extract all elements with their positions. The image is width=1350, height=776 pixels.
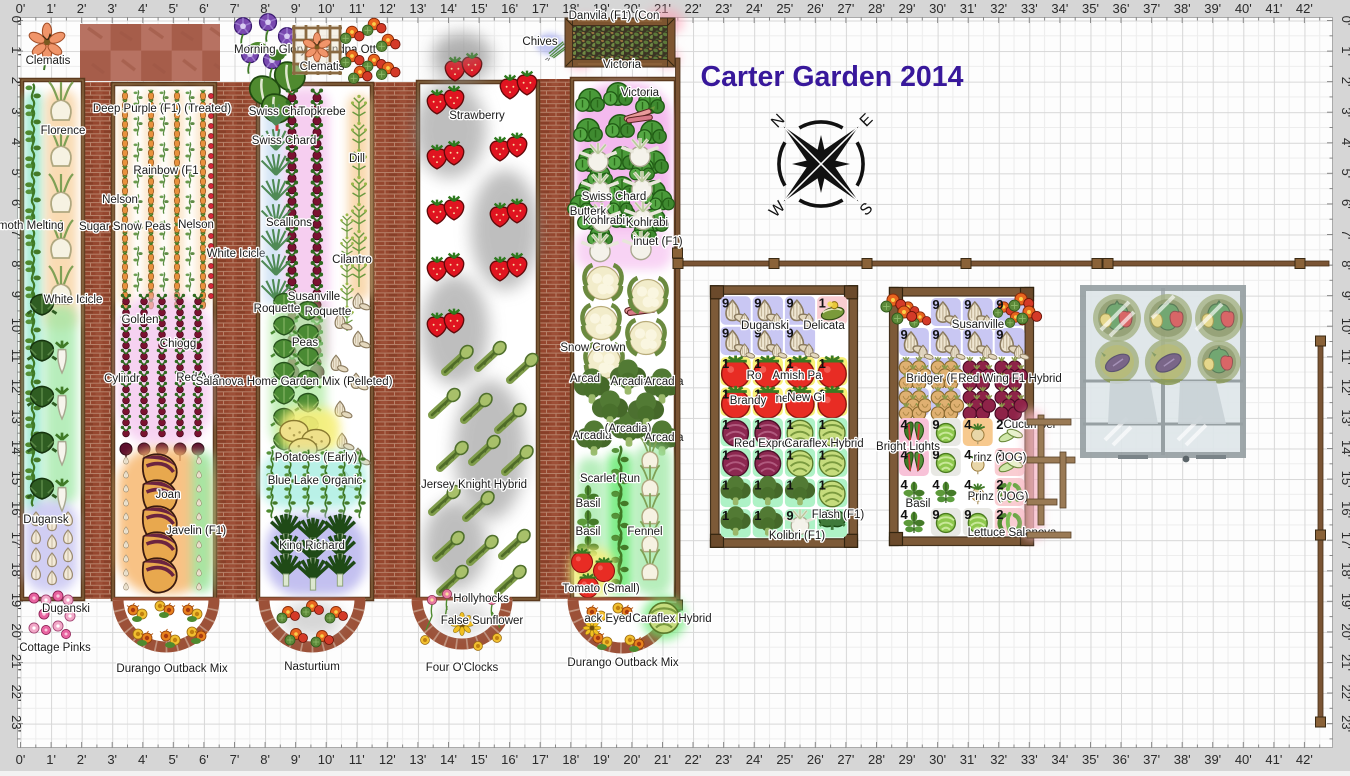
svg-text:9: 9 bbox=[901, 327, 908, 342]
svg-text:15': 15' bbox=[1339, 471, 1350, 488]
svg-text:Scallions: Scallions bbox=[266, 217, 312, 229]
svg-text:42': 42' bbox=[1296, 752, 1313, 767]
svg-text:5': 5' bbox=[168, 752, 178, 767]
svg-text:39': 39' bbox=[1204, 1, 1221, 16]
svg-text:Cilantro: Cilantro bbox=[332, 254, 372, 266]
svg-text:9: 9 bbox=[722, 295, 729, 310]
svg-text:Swiss Chard: Swiss Chard bbox=[252, 135, 317, 147]
svg-text:White Icicle: White Icicle bbox=[44, 294, 103, 306]
svg-text:10': 10' bbox=[318, 752, 335, 767]
svg-text:17': 17' bbox=[1339, 532, 1350, 549]
svg-text:16': 16' bbox=[501, 752, 518, 767]
svg-text:9: 9 bbox=[964, 297, 971, 312]
svg-text:9: 9 bbox=[932, 507, 939, 522]
svg-text:Cottage Pinks: Cottage Pinks bbox=[19, 642, 91, 654]
svg-text:9: 9 bbox=[786, 295, 793, 310]
svg-text:40': 40' bbox=[1235, 752, 1252, 767]
svg-text:13': 13' bbox=[409, 752, 426, 767]
svg-text:Blue Lake Organic: Blue Lake Organic bbox=[268, 475, 363, 487]
svg-text:1: 1 bbox=[722, 447, 729, 462]
svg-text:23': 23' bbox=[715, 1, 732, 16]
svg-text:19': 19' bbox=[593, 752, 610, 767]
svg-text:Duganski: Duganski bbox=[741, 320, 789, 332]
svg-text:Topkrebe: Topkrebe bbox=[298, 106, 345, 118]
svg-text:1: 1 bbox=[722, 417, 729, 432]
svg-text:Prinz (JOG): Prinz (JOG) bbox=[968, 491, 1029, 503]
svg-text:Brandy: Brandy bbox=[730, 395, 767, 407]
svg-text:10': 10' bbox=[1339, 318, 1350, 335]
svg-text:22': 22' bbox=[9, 685, 24, 702]
svg-text:4: 4 bbox=[964, 447, 972, 462]
svg-text:Deep Purple (F1) (Treated): Deep Purple (F1) (Treated) bbox=[93, 103, 231, 115]
svg-text:2': 2' bbox=[1339, 77, 1350, 87]
svg-text:1': 1' bbox=[1339, 46, 1350, 56]
svg-text:Kolibri (F1): Kolibri (F1) bbox=[769, 530, 825, 542]
svg-text:Tomato (Small): Tomato (Small) bbox=[562, 583, 639, 595]
svg-text:12': 12' bbox=[379, 1, 396, 16]
svg-text:Caraflex Hybrid: Caraflex Hybrid bbox=[632, 613, 711, 625]
svg-text:Basil: Basil bbox=[576, 526, 601, 538]
svg-text:35': 35' bbox=[1082, 1, 1099, 16]
svg-text:Basil: Basil bbox=[576, 498, 601, 510]
svg-text:1: 1 bbox=[819, 356, 826, 371]
svg-text:26': 26' bbox=[807, 1, 824, 16]
svg-text:Strawberry: Strawberry bbox=[449, 110, 505, 122]
svg-text:22': 22' bbox=[685, 1, 702, 16]
svg-text:9: 9 bbox=[964, 507, 971, 522]
svg-text:Clematis: Clematis bbox=[26, 55, 71, 67]
svg-text:Peas: Peas bbox=[292, 337, 318, 349]
svg-text:38': 38' bbox=[1174, 1, 1191, 16]
svg-text:Caraflex Hybrid: Caraflex Hybrid bbox=[784, 438, 863, 450]
svg-text:12': 12' bbox=[1339, 379, 1350, 396]
svg-text:7': 7' bbox=[230, 752, 240, 767]
svg-text:Flash (F1): Flash (F1) bbox=[812, 509, 865, 521]
svg-text:41': 41' bbox=[1265, 1, 1282, 16]
svg-text:1': 1' bbox=[9, 46, 24, 56]
svg-text:4': 4' bbox=[138, 752, 148, 767]
svg-text:1: 1 bbox=[722, 478, 729, 493]
svg-text:9': 9' bbox=[291, 752, 301, 767]
svg-text:2': 2' bbox=[77, 752, 87, 767]
svg-text:32': 32' bbox=[990, 752, 1007, 767]
svg-text:39': 39' bbox=[1204, 752, 1221, 767]
svg-text:33': 33' bbox=[1021, 752, 1038, 767]
svg-text:Sugar Snow Peas: Sugar Snow Peas bbox=[79, 221, 171, 233]
svg-text:28': 28' bbox=[868, 1, 885, 16]
svg-text:inuet (F1): inuet (F1) bbox=[633, 236, 682, 248]
svg-text:Durango Outback Mix: Durango Outback Mix bbox=[116, 663, 227, 675]
svg-text:Bridger (F1: Bridger (F1 bbox=[906, 373, 964, 385]
svg-text:32': 32' bbox=[990, 1, 1007, 16]
svg-text:15': 15' bbox=[471, 1, 488, 16]
svg-text:9: 9 bbox=[754, 295, 761, 310]
svg-text:8': 8' bbox=[260, 752, 270, 767]
svg-text:Florence: Florence bbox=[41, 125, 86, 137]
svg-text:10': 10' bbox=[318, 1, 335, 16]
svg-text:6': 6' bbox=[1339, 199, 1350, 209]
svg-text:36': 36' bbox=[1113, 1, 1130, 16]
svg-text:Fennel: Fennel bbox=[627, 526, 662, 538]
svg-text:Kohlrabi: Kohlrabi bbox=[626, 217, 668, 229]
svg-text:4: 4 bbox=[932, 477, 940, 492]
svg-text:26': 26' bbox=[807, 752, 824, 767]
svg-text:14': 14' bbox=[440, 752, 457, 767]
svg-text:0': 0' bbox=[16, 752, 26, 767]
svg-text:Potatoes (Early): Potatoes (Early) bbox=[275, 452, 358, 464]
svg-text:Carter Garden 2014: Carter Garden 2014 bbox=[701, 61, 964, 93]
svg-text:20': 20' bbox=[9, 623, 24, 640]
svg-text:19': 19' bbox=[1339, 593, 1350, 610]
svg-text:1: 1 bbox=[819, 295, 826, 310]
svg-text:23': 23' bbox=[9, 715, 24, 732]
svg-text:9': 9' bbox=[291, 1, 301, 16]
svg-text:9': 9' bbox=[1339, 291, 1350, 301]
svg-text:21': 21' bbox=[654, 752, 671, 767]
svg-text:1': 1' bbox=[46, 752, 56, 767]
svg-text:21': 21' bbox=[9, 654, 24, 671]
svg-text:23': 23' bbox=[715, 752, 732, 767]
svg-text:1: 1 bbox=[754, 478, 761, 493]
svg-text:18': 18' bbox=[562, 752, 579, 767]
svg-text:5': 5' bbox=[168, 1, 178, 16]
svg-text:4': 4' bbox=[138, 1, 148, 16]
svg-text:Danvila (F1) (Con: Danvila (F1) (Con bbox=[569, 10, 660, 22]
svg-text:16': 16' bbox=[501, 1, 518, 16]
svg-text:0': 0' bbox=[9, 16, 24, 26]
svg-text:37': 37' bbox=[1143, 1, 1160, 16]
svg-text:1: 1 bbox=[819, 417, 826, 432]
svg-text:2: 2 bbox=[996, 507, 1003, 522]
svg-text:Cylindr: Cylindr bbox=[104, 373, 140, 385]
svg-text:11': 11' bbox=[349, 752, 365, 767]
svg-text:13': 13' bbox=[1339, 409, 1350, 426]
svg-text:13': 13' bbox=[409, 1, 426, 16]
svg-text:12': 12' bbox=[379, 752, 396, 767]
svg-text:Javelin (F1): Javelin (F1) bbox=[166, 525, 226, 537]
svg-text:7': 7' bbox=[1339, 230, 1350, 240]
svg-text:Ro: Ro bbox=[747, 370, 762, 382]
svg-text:Basil: Basil bbox=[906, 498, 931, 510]
svg-text:Roquette: Roquette bbox=[254, 303, 301, 315]
svg-text:8': 8' bbox=[1339, 260, 1350, 270]
svg-text:38': 38' bbox=[1174, 752, 1191, 767]
svg-text:Joan: Joan bbox=[156, 489, 181, 501]
svg-text:2': 2' bbox=[77, 1, 87, 16]
svg-text:Victoria: Victoria bbox=[603, 59, 642, 71]
svg-text:Duganski: Duganski bbox=[42, 603, 90, 615]
svg-text:41': 41' bbox=[1265, 752, 1282, 767]
svg-text:1': 1' bbox=[46, 1, 56, 16]
svg-text:20': 20' bbox=[623, 752, 640, 767]
svg-text:Four O'Clocks: Four O'Clocks bbox=[426, 662, 499, 674]
svg-text:25': 25' bbox=[776, 752, 793, 767]
svg-text:Mammoth Melting: Mammoth Melting bbox=[0, 220, 64, 232]
svg-text:Dugansk: Dugansk bbox=[23, 514, 69, 526]
svg-text:Dill: Dill bbox=[349, 153, 365, 165]
svg-text:Delicata: Delicata bbox=[803, 320, 845, 332]
svg-text:Amish Pa: Amish Pa bbox=[772, 370, 822, 382]
svg-text:34': 34' bbox=[1051, 1, 1068, 16]
svg-text:15': 15' bbox=[471, 752, 488, 767]
svg-text:3': 3' bbox=[107, 1, 117, 16]
svg-text:Chives: Chives bbox=[522, 36, 557, 48]
svg-text:Hollyhocks: Hollyhocks bbox=[453, 593, 509, 605]
svg-text:False Sunflower: False Sunflower bbox=[441, 615, 524, 627]
svg-text:9: 9 bbox=[932, 417, 939, 432]
svg-text:Kohlrabi: Kohlrabi bbox=[583, 215, 625, 227]
svg-text:Nelson: Nelson bbox=[178, 219, 214, 231]
svg-text:1: 1 bbox=[786, 356, 793, 371]
svg-text:3': 3' bbox=[1339, 107, 1350, 117]
svg-text:Clematis: Clematis bbox=[300, 61, 345, 73]
svg-text:2: 2 bbox=[996, 477, 1003, 492]
svg-text:9: 9 bbox=[932, 297, 939, 312]
svg-text:9: 9 bbox=[996, 297, 1003, 312]
svg-text:Swiss Chard: Swiss Chard bbox=[582, 191, 647, 203]
svg-text:4: 4 bbox=[901, 477, 909, 492]
svg-text:5': 5' bbox=[1339, 168, 1350, 178]
svg-text:Bright Lights: Bright Lights bbox=[876, 441, 940, 453]
svg-text:1: 1 bbox=[786, 478, 793, 493]
svg-text:30': 30' bbox=[929, 752, 946, 767]
svg-text:16': 16' bbox=[1339, 501, 1350, 518]
svg-text:1: 1 bbox=[786, 417, 793, 432]
svg-text:14': 14' bbox=[1339, 440, 1350, 457]
svg-text:King Richard: King Richard bbox=[279, 540, 345, 552]
svg-text:1: 1 bbox=[819, 478, 826, 493]
svg-text:6': 6' bbox=[199, 752, 209, 767]
svg-text:31': 31' bbox=[960, 752, 977, 767]
svg-text:4: 4 bbox=[901, 417, 909, 432]
svg-text:31': 31' bbox=[960, 1, 977, 16]
svg-text:Red Wing F1 Hybrid: Red Wing F1 Hybrid bbox=[958, 373, 1062, 385]
svg-text:29': 29' bbox=[899, 1, 916, 16]
svg-text:17': 17' bbox=[532, 1, 549, 16]
svg-text:Golden: Golden bbox=[121, 314, 158, 326]
svg-text:37': 37' bbox=[1143, 752, 1160, 767]
svg-text:4': 4' bbox=[1339, 138, 1350, 148]
svg-text:1: 1 bbox=[754, 417, 761, 432]
svg-text:35': 35' bbox=[1082, 752, 1099, 767]
svg-text:29': 29' bbox=[899, 752, 916, 767]
svg-text:ack Eyed: ack Eyed bbox=[584, 613, 631, 625]
svg-text:4: 4 bbox=[964, 477, 972, 492]
svg-text:New Gi: New Gi bbox=[787, 392, 825, 404]
svg-text:2: 2 bbox=[996, 417, 1003, 432]
svg-text:7': 7' bbox=[230, 1, 240, 16]
svg-text:42': 42' bbox=[1296, 1, 1313, 16]
svg-text:1: 1 bbox=[722, 508, 729, 523]
svg-text:34': 34' bbox=[1051, 752, 1068, 767]
svg-text:White Icicle: White Icicle bbox=[207, 248, 266, 260]
svg-text:1: 1 bbox=[754, 356, 761, 371]
svg-text:9: 9 bbox=[932, 327, 939, 342]
svg-text:Salanova Home Garden Mix (Pell: Salanova Home Garden Mix (Pelleted) bbox=[196, 376, 393, 388]
svg-text:22': 22' bbox=[685, 752, 702, 767]
svg-text:Jersey Knight Hybrid: Jersey Knight Hybrid bbox=[421, 479, 527, 491]
svg-text:Arcad: Arcad bbox=[570, 373, 600, 385]
svg-text:24': 24' bbox=[746, 752, 763, 767]
svg-text:20': 20' bbox=[1339, 623, 1350, 640]
svg-text:rinz (JOG): rinz (JOG) bbox=[973, 452, 1026, 464]
svg-text:1: 1 bbox=[722, 387, 729, 402]
svg-text:11': 11' bbox=[1339, 349, 1350, 365]
svg-text:23': 23' bbox=[1339, 715, 1350, 732]
svg-text:14': 14' bbox=[440, 1, 457, 16]
svg-text:Snow Crown: Snow Crown bbox=[560, 342, 625, 354]
svg-text:4: 4 bbox=[964, 417, 972, 432]
svg-text:9: 9 bbox=[722, 326, 729, 341]
svg-text:Nasturtium: Nasturtium bbox=[284, 661, 340, 673]
svg-text:0': 0' bbox=[16, 1, 26, 16]
svg-text:33': 33' bbox=[1021, 1, 1038, 16]
svg-text:6': 6' bbox=[199, 1, 209, 16]
svg-text:36': 36' bbox=[1113, 752, 1130, 767]
svg-text:0': 0' bbox=[1339, 16, 1350, 26]
svg-text:1: 1 bbox=[754, 508, 761, 523]
svg-text:Nelson: Nelson bbox=[102, 194, 138, 206]
svg-text:24': 24' bbox=[746, 1, 763, 16]
svg-text:22': 22' bbox=[1339, 685, 1350, 702]
svg-text:21': 21' bbox=[1339, 654, 1350, 671]
svg-text:25': 25' bbox=[776, 1, 793, 16]
svg-text:Susanville: Susanville bbox=[952, 319, 1004, 331]
svg-text:11': 11' bbox=[349, 1, 365, 16]
svg-text:3': 3' bbox=[107, 752, 117, 767]
svg-text:Victoria: Victoria bbox=[621, 87, 660, 99]
svg-text:Rainbow (F1: Rainbow (F1 bbox=[133, 165, 198, 177]
svg-text:Susanville: Susanville bbox=[288, 291, 340, 303]
svg-text:28': 28' bbox=[868, 752, 885, 767]
svg-text:27': 27' bbox=[837, 1, 854, 16]
svg-text:18': 18' bbox=[1339, 562, 1350, 579]
svg-text:Roquette: Roquette bbox=[305, 306, 352, 318]
svg-text:Scarlet Run: Scarlet Run bbox=[580, 473, 640, 485]
svg-text:Chiogg: Chiogg bbox=[160, 338, 196, 350]
svg-text:1: 1 bbox=[722, 356, 729, 371]
svg-text:30': 30' bbox=[929, 1, 946, 16]
svg-text:40': 40' bbox=[1235, 1, 1252, 16]
svg-text:17': 17' bbox=[532, 752, 549, 767]
svg-text:Durango Outback Mix: Durango Outback Mix bbox=[567, 657, 678, 669]
svg-text:27': 27' bbox=[837, 752, 854, 767]
svg-text:9: 9 bbox=[786, 508, 793, 523]
